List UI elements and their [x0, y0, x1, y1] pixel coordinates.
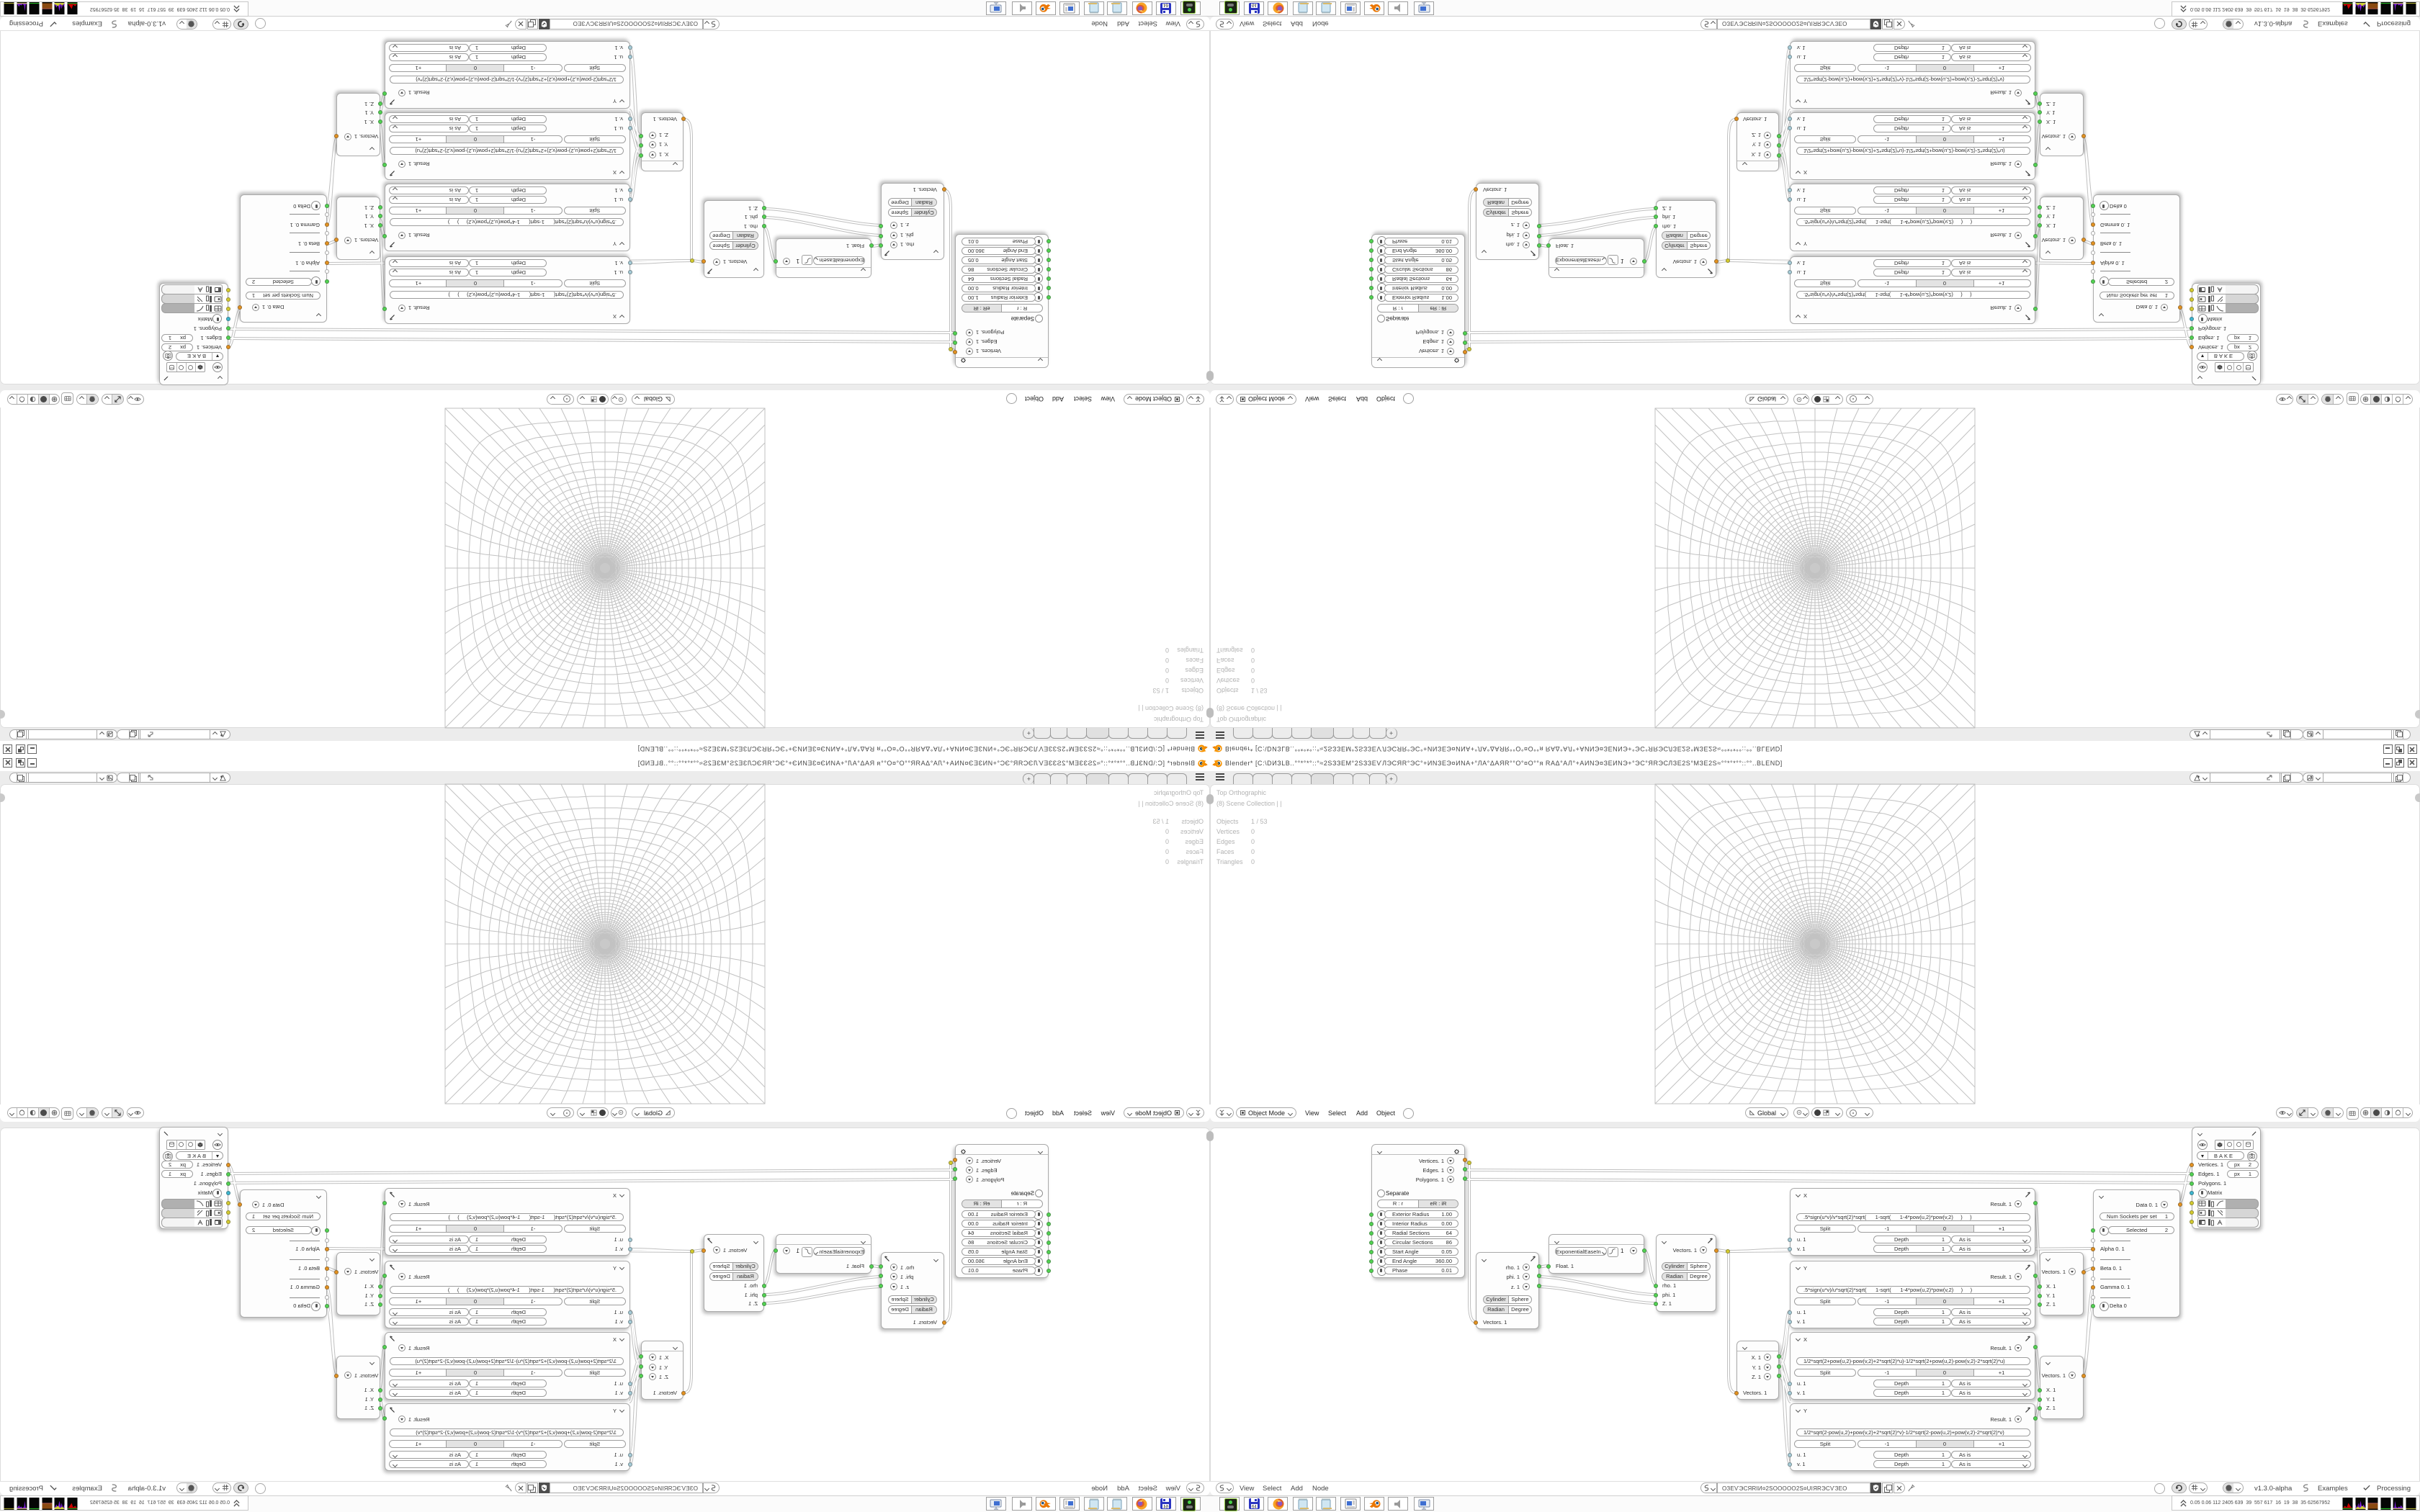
svg-text:64: 64 — [1252, 3, 1257, 7]
svg-text:64: 64 — [1163, 1506, 1168, 1510]
svg-text:64: 64 — [1252, 1505, 1257, 1509]
svg-text:64: 64 — [1163, 3, 1168, 7]
